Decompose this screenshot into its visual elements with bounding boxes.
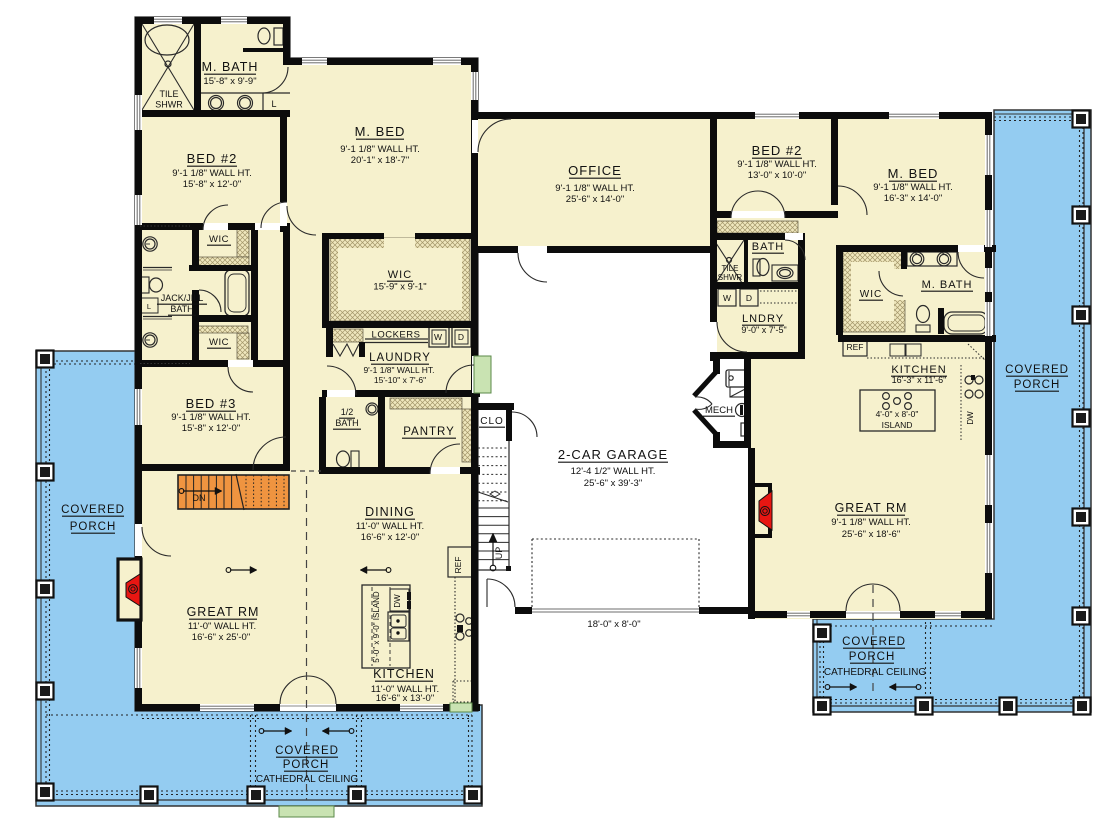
svg-text:15'-9" x 9'-1": 15'-9" x 9'-1" xyxy=(373,282,426,293)
svg-text:LNDRY: LNDRY xyxy=(742,313,784,325)
svg-text:1/2: 1/2 xyxy=(341,407,354,417)
svg-text:SHWR: SHWR xyxy=(718,273,743,282)
svg-text:BED #2: BED #2 xyxy=(187,151,238,166)
svg-text:LOCKERS: LOCKERS xyxy=(372,330,421,341)
svg-text:25'-6" x 18'-6": 25'-6" x 18'-6" xyxy=(842,529,900,540)
svg-text:WIC: WIC xyxy=(209,337,229,348)
svg-text:16'-6" x 13'-0": 16'-6" x 13'-0" xyxy=(376,693,434,704)
svg-text:REF: REF xyxy=(453,557,463,574)
svg-text:2-CAR GARAGE: 2-CAR GARAGE xyxy=(558,447,668,462)
svg-text:WIC: WIC xyxy=(209,234,229,245)
svg-text:GREAT RM: GREAT RM xyxy=(187,605,260,619)
svg-text:TILE: TILE xyxy=(159,89,178,99)
svg-text:15'-8" x 12'-0": 15'-8" x 12'-0" xyxy=(182,423,240,434)
svg-text:GREAT RM: GREAT RM xyxy=(835,501,908,515)
svg-text:COVERED: COVERED xyxy=(275,745,339,757)
svg-text:L: L xyxy=(271,99,276,109)
svg-text:PORCH: PORCH xyxy=(283,759,330,771)
svg-text:9'-1 1/8" WALL HT.: 9'-1 1/8" WALL HT. xyxy=(172,168,251,179)
svg-text:13'-0" x 10'-0": 13'-0" x 10'-0" xyxy=(748,170,806,181)
svg-text:BED #3: BED #3 xyxy=(186,396,237,411)
svg-text:ISLAND: ISLAND xyxy=(882,420,913,430)
svg-text:11'-0" WALL HT.: 11'-0" WALL HT. xyxy=(188,621,256,632)
svg-text:REF: REF xyxy=(847,342,864,352)
svg-text:DN: DN xyxy=(193,493,206,503)
svg-text:D: D xyxy=(458,332,464,342)
svg-text:WIC: WIC xyxy=(860,289,882,300)
svg-text:9'-0" x 7'-5": 9'-0" x 7'-5" xyxy=(741,325,786,335)
svg-text:PORCH: PORCH xyxy=(70,521,117,533)
svg-text:COVERED: COVERED xyxy=(842,636,906,648)
svg-text:COVERED: COVERED xyxy=(61,504,125,516)
svg-text:16'-6" x 12'-0": 16'-6" x 12'-0" xyxy=(361,532,419,543)
svg-text:9'-1 1/8" WALL HT.: 9'-1 1/8" WALL HT. xyxy=(171,412,250,423)
svg-text:20'-1" x 18'-7": 20'-1" x 18'-7" xyxy=(351,155,409,166)
svg-text:M. BED: M. BED xyxy=(888,166,939,181)
svg-text:15'-8" x 12'-0": 15'-8" x 12'-0" xyxy=(183,179,241,190)
svg-text:15'-8" x 9'-9": 15'-8" x 9'-9" xyxy=(203,76,256,87)
svg-text:DINING: DINING xyxy=(365,505,415,519)
svg-text:COVERED: COVERED xyxy=(1005,364,1069,376)
svg-text:15'-10" x 7'-6": 15'-10" x 7'-6" xyxy=(374,375,426,385)
svg-text:11'-0" WALL HT.: 11'-0" WALL HT. xyxy=(356,521,424,532)
svg-text:D: D xyxy=(746,293,752,303)
svg-text:CLO: CLO xyxy=(480,416,504,427)
svg-text:OFFICE: OFFICE xyxy=(568,163,622,178)
svg-text:BATH: BATH xyxy=(752,241,785,253)
svg-text:CATHEDRAL CEILING: CATHEDRAL CEILING xyxy=(256,774,358,785)
svg-text:M. BATH: M. BATH xyxy=(202,60,259,74)
svg-text:BATH: BATH xyxy=(335,418,358,428)
svg-text:9'-1 1/8" WALL HT.: 9'-1 1/8" WALL HT. xyxy=(873,182,952,193)
svg-text:PORCH: PORCH xyxy=(1014,379,1061,391)
svg-text:LAUNDRY: LAUNDRY xyxy=(369,352,431,364)
svg-text:9'-1 1/8" WALL HT.: 9'-1 1/8" WALL HT. xyxy=(555,183,634,194)
svg-text:TILE: TILE xyxy=(722,264,739,273)
svg-text:BED #2: BED #2 xyxy=(752,143,803,158)
svg-text:JACK/JILL: JACK/JILL xyxy=(161,293,204,303)
svg-text:UP: UP xyxy=(494,547,504,560)
svg-text:WIC: WIC xyxy=(388,269,412,281)
svg-text:BATH: BATH xyxy=(170,304,193,314)
svg-text:DW: DW xyxy=(393,594,402,608)
svg-text:PORCH: PORCH xyxy=(849,651,896,663)
svg-text:25'-6" x 39'-3": 25'-6" x 39'-3" xyxy=(584,478,642,489)
svg-text:9'-1 1/8" WALL HT.: 9'-1 1/8" WALL HT. xyxy=(363,365,434,375)
svg-text:M. BATH: M. BATH xyxy=(922,279,973,291)
svg-text:9'-1 1/8" WALL HT.: 9'-1 1/8" WALL HT. xyxy=(831,517,910,528)
svg-text:L: L xyxy=(147,302,151,311)
svg-text:16'-3" x 11'-6": 16'-3" x 11'-6" xyxy=(892,375,947,385)
svg-text:16'-6" x 25'-0": 16'-6" x 25'-0" xyxy=(192,632,250,643)
svg-text:16'-3" x 14'-0": 16'-3" x 14'-0" xyxy=(884,193,942,204)
svg-text:W: W xyxy=(434,332,442,342)
svg-text:9'-1 1/8" WALL HT.: 9'-1 1/8" WALL HT. xyxy=(340,144,419,155)
svg-text:9'-1 1/8" WALL HT.: 9'-1 1/8" WALL HT. xyxy=(737,159,816,170)
svg-text:MECH: MECH xyxy=(705,405,733,416)
svg-text:12'-4 1/2" WALL HT.: 12'-4 1/2" WALL HT. xyxy=(571,466,656,477)
svg-text:5'-0" x 9'-0" ISLAND: 5'-0" x 9'-0" ISLAND xyxy=(372,591,381,663)
svg-text:18'-0" x 8'-0": 18'-0" x 8'-0" xyxy=(587,619,640,630)
svg-text:KITCHEN: KITCHEN xyxy=(373,667,435,681)
svg-text:SHWR: SHWR xyxy=(155,100,183,110)
svg-text:W: W xyxy=(723,293,731,303)
svg-text:M. BED: M. BED xyxy=(355,124,406,139)
svg-text:CATHEDRAL CEILING: CATHEDRAL CEILING xyxy=(824,667,926,678)
svg-text:PANTRY: PANTRY xyxy=(403,426,455,438)
svg-text:4'-0" x 8'-0": 4'-0" x 8'-0" xyxy=(876,409,919,419)
svg-text:25'-6" x 14'-0": 25'-6" x 14'-0" xyxy=(566,194,624,205)
svg-text:DW: DW xyxy=(966,411,975,425)
